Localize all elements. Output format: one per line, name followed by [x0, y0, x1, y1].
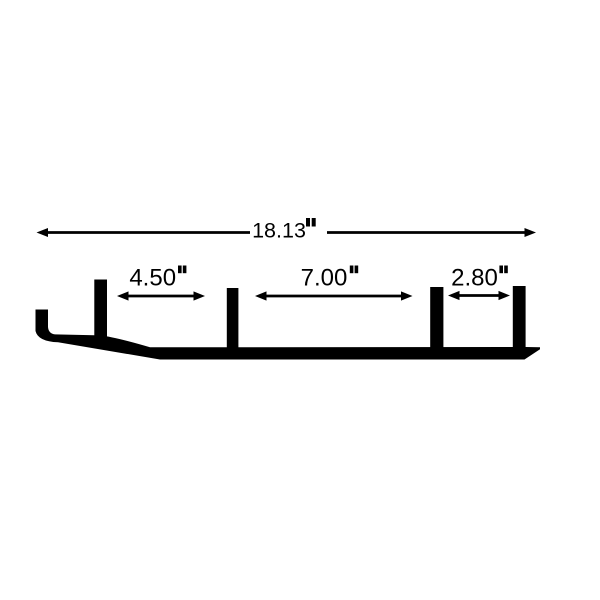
svg-text:7.00: 7.00 — [301, 265, 348, 292]
svg-text:4.50: 4.50 — [129, 265, 176, 292]
svg-text:2.80: 2.80 — [451, 265, 498, 292]
svg-text:18.13: 18.13 — [252, 219, 306, 243]
